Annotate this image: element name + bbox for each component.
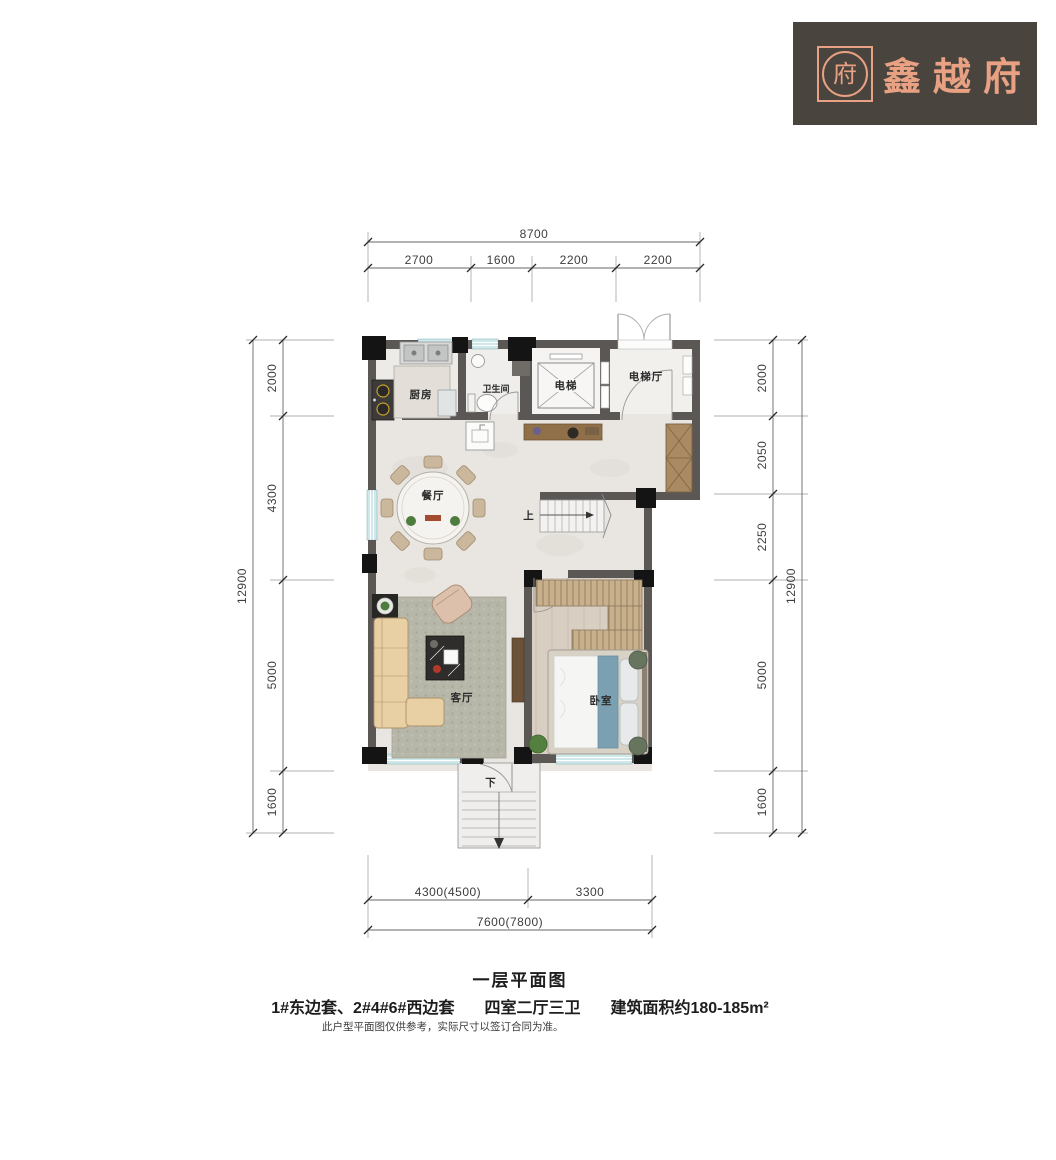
dining-window — [367, 490, 377, 540]
elevator-shaft: 电梯 — [532, 348, 609, 414]
stairs-down-label: 下 — [485, 777, 497, 789]
plant-icon — [381, 602, 390, 611]
dimensions-left: 12900 2000 4300 5000 1600 — [235, 336, 334, 837]
bedroom-window — [556, 754, 632, 764]
floor-plan-page: 府 鑫越府 — [0, 0, 1056, 1160]
elevator-door-panel — [601, 362, 609, 384]
svg-text:3300: 3300 — [576, 885, 605, 899]
spec-area: 建筑面积约180-185m² — [610, 1000, 768, 1017]
toilet — [477, 395, 497, 412]
svg-text:4300: 4300 — [265, 484, 279, 513]
flowers-icon — [433, 665, 441, 673]
elevator-hall-label: 电梯厅 — [629, 370, 664, 383]
dim-ticks — [249, 336, 287, 837]
plan-specs: 1#东边套、2#4#6#西边套四室二厅三卫建筑面积约180-185m² — [0, 994, 1040, 1018]
svg-text:1600: 1600 — [487, 253, 516, 267]
plan-title: 一层平面图 — [0, 966, 1040, 991]
stairs-up-label: 上 — [523, 509, 535, 522]
svg-text:2050: 2050 — [755, 441, 769, 470]
dimensions-right: 12900 2000 2050 2250 5000 1600 — [714, 336, 808, 837]
plant-icon — [529, 735, 547, 753]
tv-cabinet — [512, 638, 524, 702]
bathroom-label: 卫生间 — [482, 383, 509, 394]
svg-text:2700: 2700 — [405, 253, 434, 267]
nightstand — [629, 651, 647, 669]
living-label: 客厅 — [450, 691, 474, 704]
svg-text:4300(4500): 4300(4500) — [415, 885, 481, 899]
dimensions-top: 8700 2700 1600 2200 2200 — [364, 227, 704, 302]
plant-icon — [450, 516, 460, 526]
bedroom-label: 卧室 — [590, 694, 613, 707]
entry-double-door-arcs — [618, 314, 670, 340]
dim-left-total: 12900 — [235, 568, 249, 604]
svg-text:2200: 2200 — [560, 253, 589, 267]
external-stairs: 下 — [458, 763, 540, 849]
svg-text:2000: 2000 — [755, 364, 769, 393]
living-room: 客厅 — [372, 581, 524, 758]
spec-units: 1#东边套、2#4#6#西边套 — [271, 1000, 454, 1017]
hall-cabinet — [666, 424, 692, 492]
plant-icon — [406, 516, 416, 526]
svg-text:2250: 2250 — [755, 523, 769, 552]
dimensions-bottom: 4300(4500) 3300 7600(7800) — [364, 855, 656, 938]
nightstand — [629, 737, 647, 755]
svg-text:5000: 5000 — [755, 661, 769, 690]
spec-layout: 四室二厅三卫 — [484, 1000, 580, 1017]
svg-text:5000: 5000 — [265, 661, 279, 690]
table-runner — [425, 515, 441, 521]
bathroom-window — [472, 339, 498, 349]
dim-bottom-total: 7600(7800) — [477, 915, 543, 929]
plan-disclaimer: 此户型平面图仅供参考，实际尺寸以签订合同为准。 — [322, 1019, 564, 1034]
dim-right-total: 12900 — [784, 568, 798, 604]
dining-table — [397, 472, 469, 544]
svg-text:1600: 1600 — [265, 788, 279, 817]
dining-room: 餐厅 — [381, 456, 485, 560]
svg-text:2000: 2000 — [265, 364, 279, 393]
elevator-label: 电梯 — [555, 379, 578, 392]
hall-console — [524, 424, 602, 440]
svg-text:1600: 1600 — [755, 788, 769, 817]
dim-top-total: 8700 — [520, 227, 549, 241]
coffee-table — [426, 636, 464, 680]
svg-text:2200: 2200 — [644, 253, 673, 267]
elevator-door-panel — [601, 386, 609, 408]
kitchen-label: 厨房 — [410, 388, 433, 401]
basin — [472, 355, 485, 368]
dining-label: 餐厅 — [421, 489, 445, 502]
kitchen-appliance — [438, 390, 456, 416]
